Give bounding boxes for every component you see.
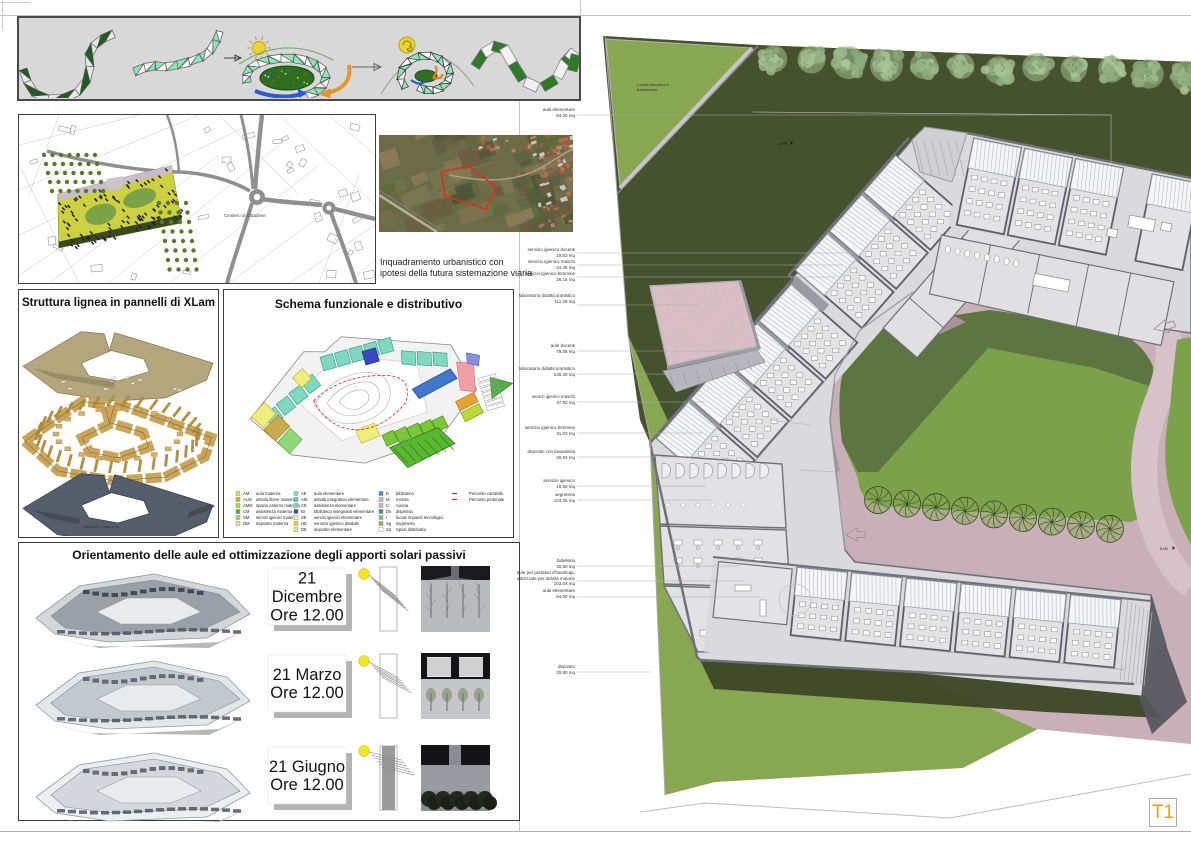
svg-text:Sd: Sd bbox=[386, 527, 392, 532]
svg-text:Ore 12.00: Ore 12.00 bbox=[270, 607, 343, 625]
svg-text:spazio esterno materna: spazio esterno materna bbox=[256, 503, 300, 508]
svg-text:Cimitero di Cittadese: Cimitero di Cittadese bbox=[224, 213, 266, 218]
svg-text:locale impianti tecnologici: locale impianti tecnologici bbox=[396, 515, 444, 520]
svg-text:AIE: AIE bbox=[301, 497, 308, 502]
svg-text:aula materna: aula materna bbox=[256, 491, 281, 496]
svg-text:SM: SM bbox=[243, 515, 250, 520]
svg-text:platea di fondazione: platea di fondazione bbox=[83, 524, 120, 529]
svg-text:biblioteca insegnanti elementa: biblioteca insegnanti elementare bbox=[314, 509, 375, 514]
svg-text:ALM: ALM bbox=[243, 497, 252, 502]
svg-text:assistenza elementare: assistenza elementare bbox=[314, 503, 357, 508]
svg-text:deposito materna: deposito materna bbox=[256, 521, 289, 526]
svg-text:BI: BI bbox=[301, 509, 305, 514]
svg-text:21 Giugno: 21 Giugno bbox=[269, 758, 345, 776]
svg-text:I: I bbox=[386, 515, 387, 520]
svg-text:DM: DM bbox=[243, 521, 250, 526]
svg-text:segreteria: segreteria bbox=[396, 521, 415, 526]
svg-text:M: M bbox=[386, 497, 390, 502]
svg-text:deposito elementare: deposito elementare bbox=[314, 527, 353, 532]
svg-text:Ds: Ds bbox=[386, 509, 391, 514]
svg-text:21 Marzo: 21 Marzo bbox=[273, 666, 342, 684]
svg-text:servizio igienico disabile: servizio igienico disabile bbox=[314, 521, 360, 526]
svg-text:B: B bbox=[386, 491, 389, 496]
svg-text:servizi igienici materna: servizi igienici materna bbox=[256, 515, 299, 520]
svg-text:Dicembre: Dicembre bbox=[272, 588, 343, 606]
svg-text:AMst: AMst bbox=[243, 503, 253, 508]
svg-text:CE: CE bbox=[301, 503, 307, 508]
svg-text:C: C bbox=[386, 503, 389, 508]
svg-text:-1.96: -1.96 bbox=[778, 141, 788, 146]
svg-text:cucina: cucina bbox=[396, 503, 409, 508]
svg-text:DE: DE bbox=[301, 527, 307, 532]
svg-text:dispensa: dispensa bbox=[396, 509, 413, 514]
svg-text:servizi igienici elementare: servizi igienici elementare bbox=[314, 515, 363, 520]
svg-text:trattamento: trattamento bbox=[637, 87, 658, 92]
svg-text:CM: CM bbox=[243, 509, 250, 514]
svg-text:attività integrativa elementar: attività integrativa elementare bbox=[314, 497, 369, 502]
svg-text:AM: AM bbox=[243, 491, 250, 496]
svg-text:biblioteca: biblioteca bbox=[396, 491, 414, 496]
svg-text:0.00: 0.00 bbox=[1160, 546, 1169, 551]
svg-text:AE: AE bbox=[301, 491, 307, 496]
svg-text:SE: SE bbox=[301, 515, 307, 520]
svg-text:aula elementare: aula elementare bbox=[314, 491, 345, 496]
svg-text:assistenza materna: assistenza materna bbox=[256, 509, 293, 514]
svg-text:mensa: mensa bbox=[396, 497, 409, 502]
svg-text:Ore 12.00: Ore 12.00 bbox=[270, 684, 343, 702]
svg-text:HE: HE bbox=[301, 521, 307, 526]
svg-text:21: 21 bbox=[298, 570, 316, 588]
svg-text:Spazi distributivi: Spazi distributivi bbox=[396, 527, 426, 532]
svg-text:Ore 12.00: Ore 12.00 bbox=[270, 776, 343, 794]
svg-text:Sg: Sg bbox=[386, 521, 392, 526]
svg-text:attività libere materna: attività libere materna bbox=[256, 497, 297, 502]
